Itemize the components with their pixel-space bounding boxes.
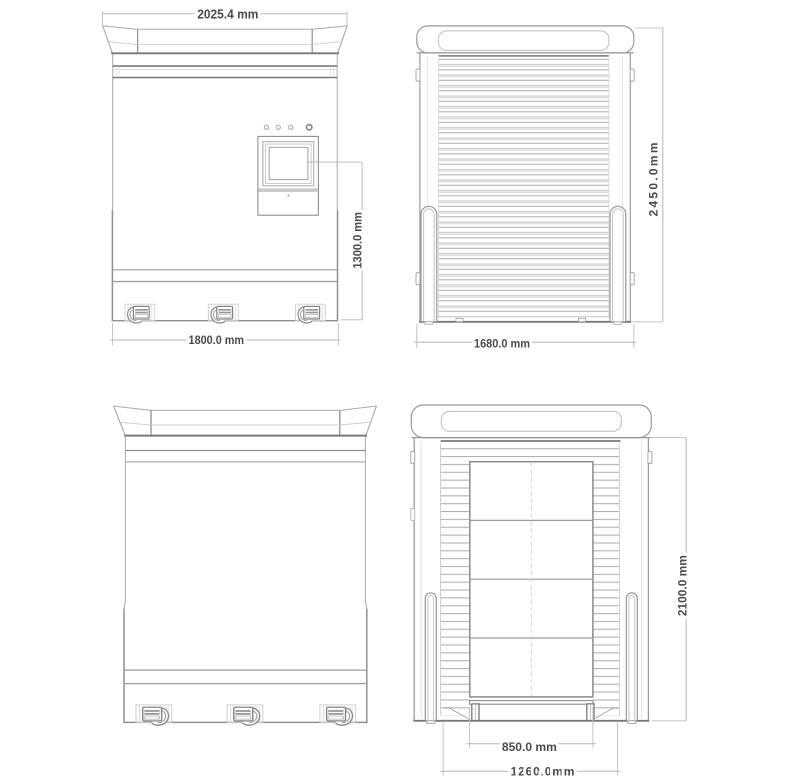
svg-text:850.0 mm: 850.0 mm: [502, 740, 557, 754]
svg-text:1260.0mm: 1260.0mm: [511, 765, 575, 778]
svg-text:2450.0mm: 2450.0mm: [647, 143, 661, 217]
svg-text:2100.0 mm: 2100.0 mm: [676, 555, 690, 616]
svg-text:2025.4 mm: 2025.4 mm: [197, 7, 258, 21]
svg-text:1800.0 mm: 1800.0 mm: [189, 333, 245, 347]
svg-text:1680.0 mm: 1680.0 mm: [474, 336, 530, 350]
svg-text:1300.0 mm: 1300.0 mm: [351, 212, 365, 269]
